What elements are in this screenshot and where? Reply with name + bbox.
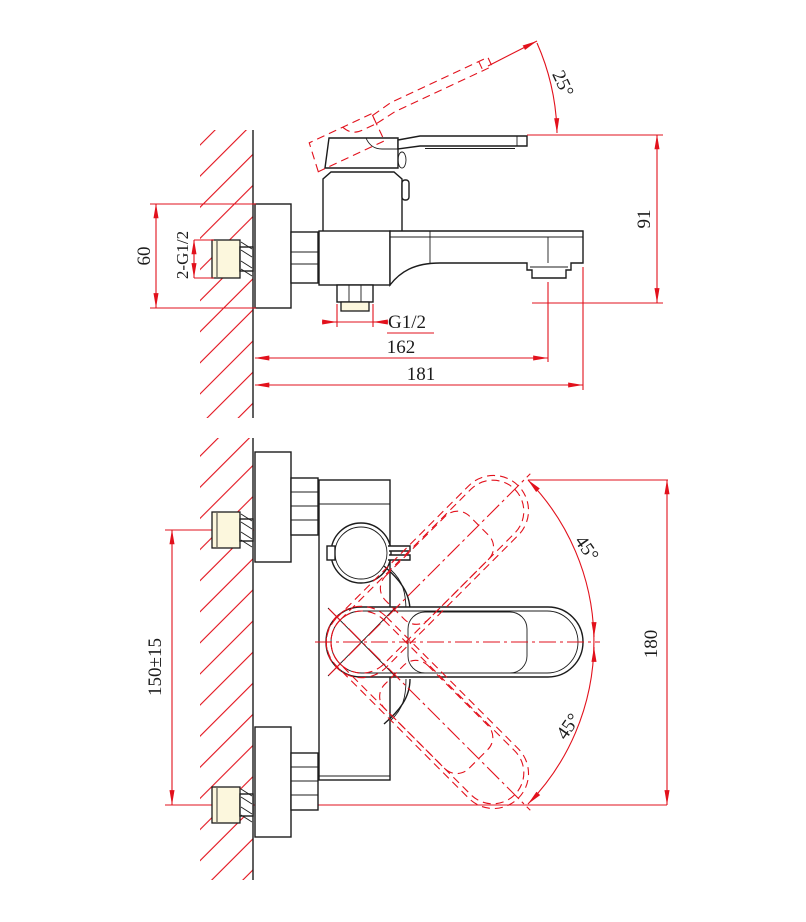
upper-hex-nut-front [291, 478, 318, 535]
drawing-canvas: 60 2-G1/2 G1/2 162 181 [0, 0, 806, 922]
upper-escutcheon-front [255, 452, 291, 562]
cartridge-housing-side [323, 172, 402, 231]
dim-shower-outlet-thread: G1/2 [388, 312, 426, 333]
lower-escutcheon-front [255, 727, 291, 837]
spout-side [390, 231, 583, 285]
dim-wall-inlet-thread: 2-G1/2 [173, 231, 192, 279]
shower-outlet-side [337, 285, 373, 311]
escutcheon-side [255, 204, 291, 308]
lever-joint-detail [398, 152, 406, 168]
dim-escutcheon-height: 60 [134, 247, 155, 266]
dim-swing-down: 45° [552, 710, 584, 744]
handle-lever-side [398, 136, 527, 149]
technical-drawing-sheet: 60 2-G1/2 G1/2 162 181 [0, 0, 806, 922]
faucet-body-side [255, 136, 583, 311]
side-view: 60 2-G1/2 G1/2 162 181 [134, 41, 663, 418]
dim-swing-up: 45° [570, 532, 602, 566]
dim-overall-reach: 181 [407, 364, 436, 385]
wall-inlet-fitting-side [212, 240, 253, 278]
hex-nut-side [291, 232, 318, 283]
faucet-body-front [319, 480, 583, 780]
dim-overall-height: 180 [641, 630, 662, 659]
lower-hex-nut-front [291, 753, 318, 810]
dim-spout-center-reach: 162 [387, 337, 416, 358]
front-view: 45° 45° 180 150±15 [145, 438, 668, 880]
side-button [402, 180, 409, 200]
dim-inlet-spacing: 150±15 [145, 638, 166, 696]
dim-height-91: 91 [634, 210, 655, 229]
valve-body-side [319, 231, 390, 285]
hose-connector-clip [327, 523, 410, 583]
dim-handle-angle: 25° [547, 67, 577, 100]
